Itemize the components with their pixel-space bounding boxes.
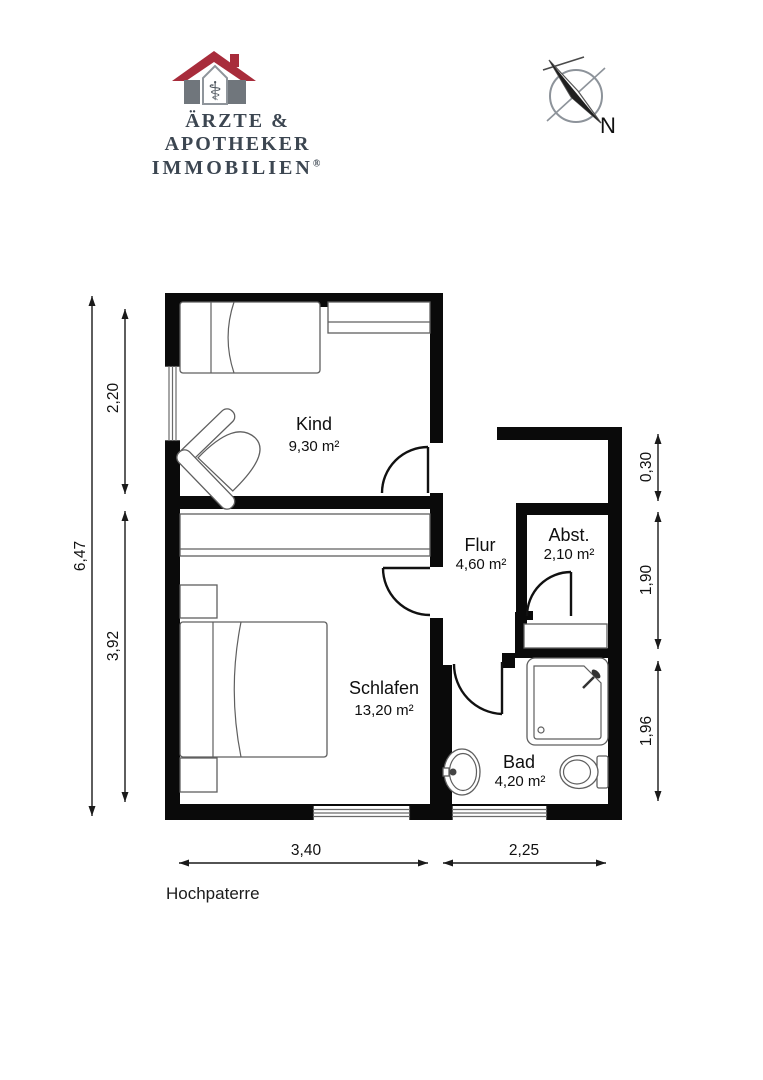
door-schlafen [383, 568, 430, 615]
bad-shower [527, 658, 608, 745]
room-label-kind: Kind [296, 414, 332, 434]
window-schlafen-bottom [313, 806, 410, 820]
room-label-schlafen: Schlafen [349, 678, 419, 698]
floorplan-drawing: Kind 9,30 m² Schlafen 13,20 m² Flur 4,60… [0, 0, 763, 1080]
dim-bottom-bad: 2,25 [443, 842, 606, 867]
wall-right [608, 427, 622, 818]
svg-text:1,90: 1,90 [638, 565, 655, 596]
room-label-abst: Abst. [548, 525, 589, 545]
svg-text:0,30: 0,30 [638, 452, 655, 483]
wall-abst-left [516, 503, 527, 612]
kind-shelf [328, 302, 430, 333]
svg-text:6,47: 6,47 [72, 541, 89, 571]
floorplan-page: ⚕ ÄRZTE & APOTHEKER IMMOBILIEN® N [0, 0, 763, 1080]
svg-text:2,25: 2,25 [509, 842, 539, 859]
dim-bottom-schlafen: 3,40 [179, 842, 428, 867]
schlafen-nightstand-bottom [180, 758, 217, 792]
dim-left-kind: 2,20 [105, 309, 129, 494]
svg-text:3,92: 3,92 [105, 631, 122, 661]
dim-right-bad: 1,96 [638, 661, 662, 801]
wall-right-section-top [497, 427, 622, 440]
schlafen-wardrobe [180, 514, 430, 556]
window-kind-left [165, 366, 180, 441]
wall-schlafen-flur-lower [430, 618, 443, 665]
abst-shelf [524, 624, 607, 648]
room-area-kind: 9,30 m² [289, 438, 340, 455]
room-area-bad: 4,20 m² [495, 773, 546, 790]
room-area-abst: 2,10 m² [544, 546, 595, 563]
dim-left-total: 6,47 [72, 296, 96, 816]
svg-text:3,40: 3,40 [291, 842, 322, 859]
door-kind [382, 447, 428, 493]
wall-abst-top [516, 503, 608, 515]
window-bad-bottom [452, 806, 547, 820]
svg-text:2,20: 2,20 [105, 383, 122, 414]
wall-schlafen-flur-mid [430, 493, 443, 567]
room-area-flur: 4,60 m² [456, 556, 507, 573]
bad-toilet [560, 756, 608, 789]
wall-bad-door-stub [502, 653, 515, 668]
schlafen-nightstand-top [180, 585, 217, 618]
svg-text:1,96: 1,96 [638, 716, 655, 746]
floor-title: Hochpaterre [166, 884, 260, 904]
room-area-schlafen: 13,20 m² [354, 702, 413, 719]
wall-left-lower [165, 441, 180, 820]
dim-right-abst: 1,90 [638, 512, 662, 649]
dim-left-schlafen: 3,92 [105, 511, 129, 802]
room-label-flur: Flur [465, 535, 496, 555]
schlafen-double-bed [180, 622, 327, 757]
door-bad [454, 662, 502, 714]
wall-kind-flur-upper [430, 293, 443, 443]
bad-sink [443, 749, 480, 795]
dim-right-top: 0,30 [638, 434, 662, 501]
room-label-bad: Bad [503, 752, 535, 772]
wall-abst-bad-divider [515, 648, 608, 658]
kind-bed [180, 302, 320, 373]
wall-left-upper [165, 293, 180, 368]
door-abst [527, 572, 571, 616]
